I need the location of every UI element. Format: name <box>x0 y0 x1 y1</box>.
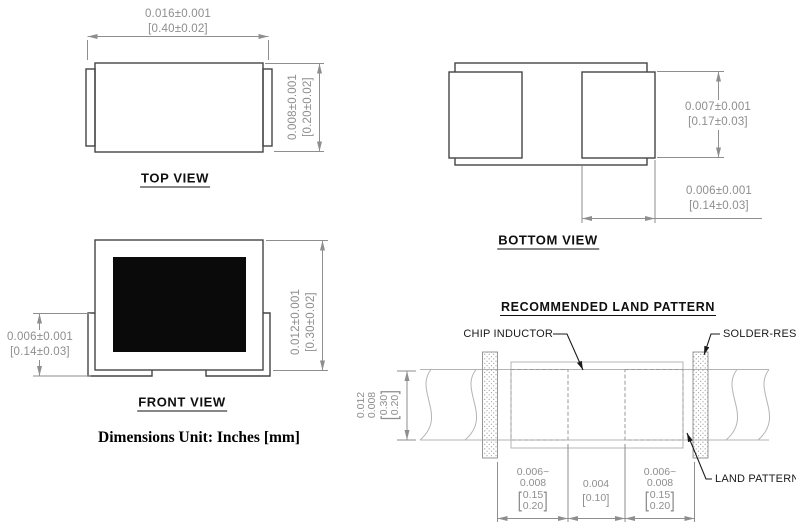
bracket-open: [ <box>645 491 649 511</box>
front-view-core <box>113 257 246 352</box>
bracket-open: [ <box>518 491 522 511</box>
solder-resist-callout: SOLDER-RESIST <box>723 328 796 340</box>
top-view-width-dimension-lines <box>88 37 269 61</box>
trace-break-curve <box>726 370 738 441</box>
front-view-drawing <box>33 240 328 376</box>
bracket-close: ] <box>607 491 610 505</box>
land-pad-width-right-dimension-text: 0.006~ 0.008 [ 0.15 0.20 ] <box>644 467 676 511</box>
bottom-view-label: BOTTOM VIEW <box>497 233 599 250</box>
chip-inductor-callout: CHIP INDUCTOR <box>463 328 553 340</box>
drawing-canvas: 0.016±0.001 [0.40±0.02] 0.008±0.001 [0.2… <box>0 0 796 525</box>
bracket-close: ] <box>671 491 675 511</box>
bottom-view-left-pad <box>449 72 522 158</box>
bottom-view-pad-height-dimension-text: 0.007±0.001 [0.17±0.03] <box>683 100 753 130</box>
solder-resist-right-bar <box>693 352 708 458</box>
bracket-close: ] <box>380 390 400 394</box>
top-view-label: TOP VIEW <box>140 171 210 188</box>
top-view-height-dimension-text: 0.008±0.001 [0.20±0.02] <box>286 74 316 140</box>
land-gap-dimension-text: 0.004 [ 0.10 ] <box>582 479 610 506</box>
land-pad-width-left-dimension-text: 0.006~ 0.008 [ 0.15 0.20 ] <box>517 467 549 511</box>
trace-break-curve <box>420 370 432 441</box>
top-view-body <box>95 63 263 152</box>
trace-break-curve <box>465 370 477 441</box>
land-pad-left <box>511 370 568 441</box>
land-pattern-title: RECOMMENDED LAND PATTERN <box>500 300 716 316</box>
front-view-terminal-dimension-text: 0.006±0.001 [0.14±0.03] <box>5 330 75 360</box>
land-trace-height-dimension-text: 0.012 0.008 [ 0.30 0.20 ] <box>356 389 400 421</box>
bracket-open: [ <box>582 491 585 505</box>
front-view-label: FRONT VIEW <box>137 395 227 412</box>
land-pad-right <box>625 370 683 441</box>
top-view-width-dimension-text: 0.016±0.001 [0.40±0.02] <box>145 7 211 37</box>
bottom-view-pad-width-dimension-text: 0.006±0.001 [0.14±0.03] <box>686 184 752 214</box>
trace-break-curve <box>758 370 770 441</box>
units-note: Dimensions Unit: Inches [mm] <box>98 429 300 447</box>
land-pattern-callout: LAND PATTERN <box>715 473 796 485</box>
chip-inductor-outline <box>511 362 683 448</box>
bracket-close: ] <box>544 491 548 511</box>
front-view-height-dimension-text: 0.012±0.001 [0.30±0.02] <box>289 289 319 355</box>
top-view-right-terminal <box>263 69 272 146</box>
solder-resist-left-bar <box>483 352 498 458</box>
chip-inductor-leader-arrow <box>553 334 583 370</box>
bracket-open: [ <box>380 416 400 420</box>
top-view-left-terminal <box>86 69 95 146</box>
bottom-view-right-pad <box>582 72 655 158</box>
